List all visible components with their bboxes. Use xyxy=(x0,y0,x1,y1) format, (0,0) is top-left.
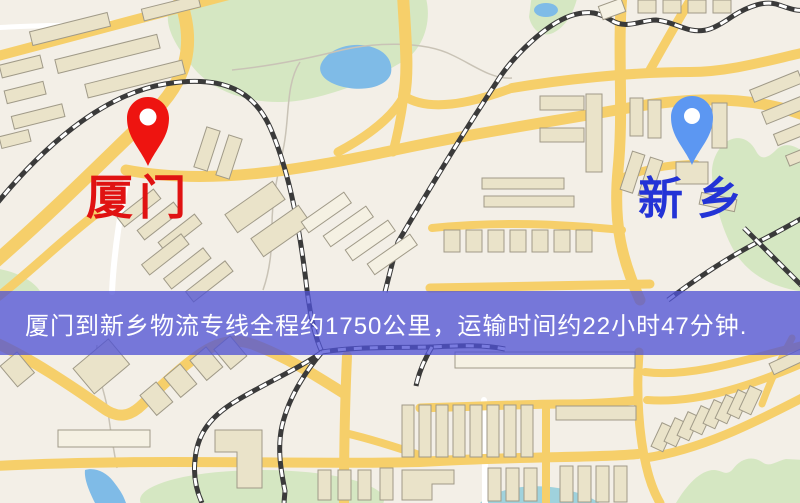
route-info-text: 厦门到新乡物流专线全程约1750公里，运输时间约22小时47分钟. xyxy=(0,306,747,341)
map-background xyxy=(0,0,800,503)
red-location-pin-icon xyxy=(126,96,170,168)
origin-pin-xiamen xyxy=(126,96,170,168)
destination-city-label: 新乡 xyxy=(638,177,756,222)
destination-pin-xinxiang xyxy=(670,95,714,167)
map-view: 厦门 新乡 厦门到新乡物流专线全程约1750公里，运输时间约22小时47分钟. xyxy=(0,0,800,503)
blue-location-pin-icon xyxy=(670,95,714,167)
route-info-banner: 厦门到新乡物流专线全程约1750公里，运输时间约22小时47分钟. xyxy=(0,291,800,355)
origin-city-label: 厦门 xyxy=(86,176,192,223)
